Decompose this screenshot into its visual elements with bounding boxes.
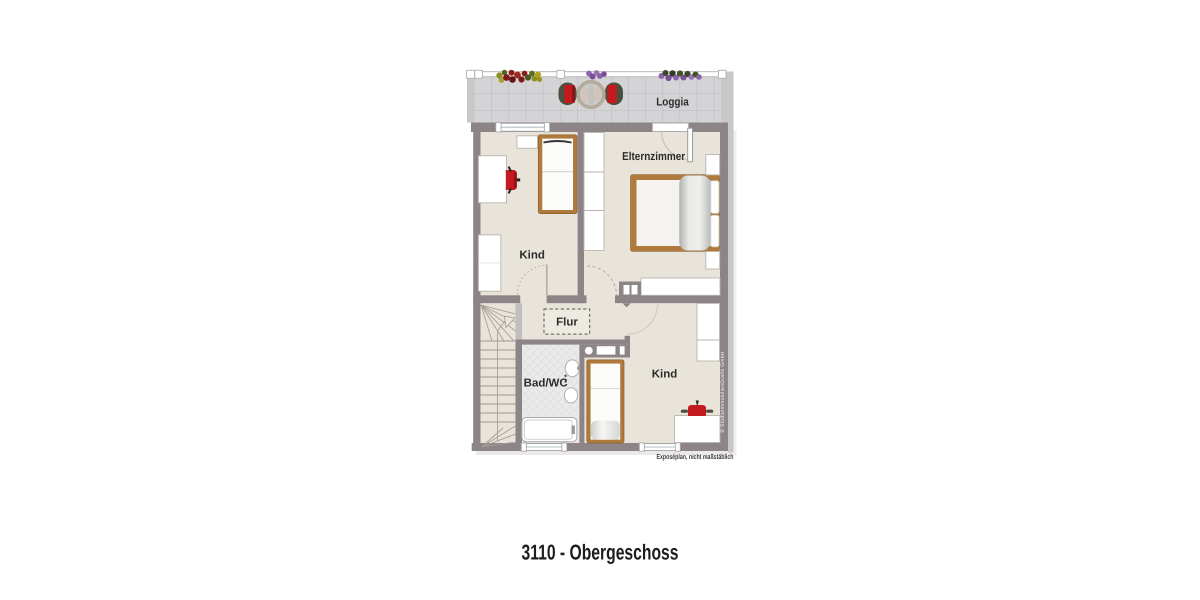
svg-text:Exposéplan, nicht maßstäblich: Exposéplan, nicht maßstäblich	[657, 452, 734, 461]
svg-text:Kind: Kind	[652, 369, 678, 381]
svg-text:Elternzimmer: Elternzimmer	[622, 151, 685, 163]
svg-text:3110 - Obergeschoss: 3110 - Obergeschoss	[522, 541, 679, 565]
svg-text:Loggia: Loggia	[656, 97, 689, 109]
svg-text:© StudioImmobilienGrafik GmbH: © StudioImmobilienGrafik GmbH	[720, 351, 726, 432]
svg-text:Bad/WC: Bad/WC	[524, 377, 568, 389]
svg-text:Flur: Flur	[556, 316, 578, 328]
svg-text:Kind: Kind	[519, 250, 545, 262]
